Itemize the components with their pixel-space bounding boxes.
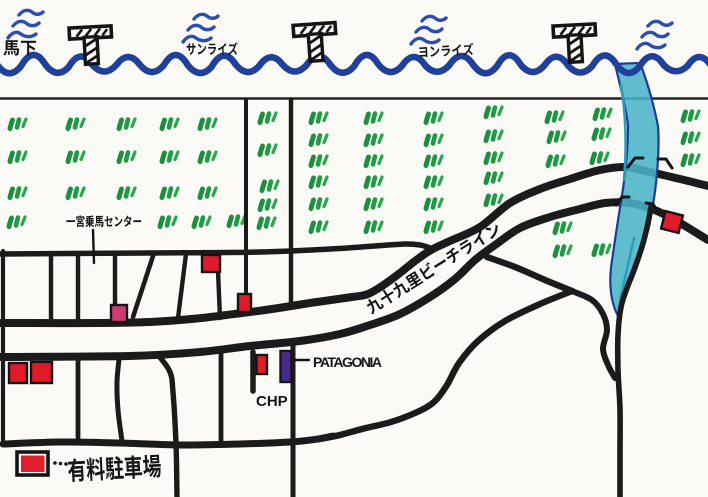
svg-text:CHP: CHP bbox=[256, 393, 288, 410]
svg-text:PATAGONIA: PATAGONIA bbox=[313, 354, 382, 370]
